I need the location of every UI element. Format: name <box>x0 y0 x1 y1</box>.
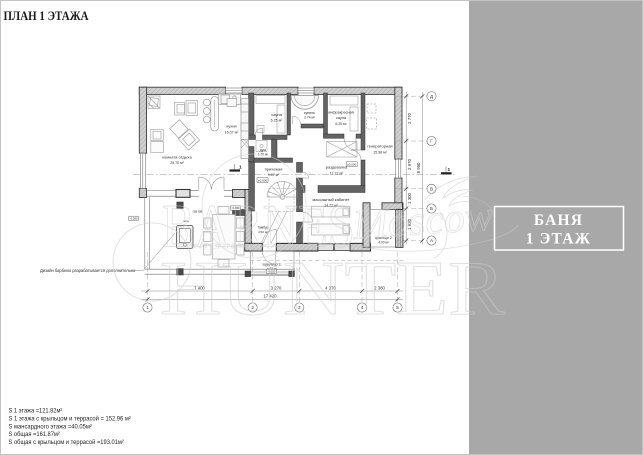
svg-text:11.22 м²: 11.22 м² <box>330 171 344 175</box>
svg-text:сауна: сауна <box>271 112 282 117</box>
svg-text:В: В <box>430 187 433 192</box>
svg-text:комната отдыха: комната отдыха <box>162 154 192 159</box>
svg-text:1 ЭТАЖ: 1 ЭТАЖ <box>526 231 591 248</box>
svg-text:БАНЯ: БАНЯ <box>534 212 583 229</box>
svg-text:±0.000: ±0.000 <box>347 162 356 166</box>
svg-text:1: 1 <box>448 167 451 173</box>
svg-text:2.74 м²: 2.74 м² <box>304 116 316 120</box>
svg-text:-0.080: -0.080 <box>130 217 138 221</box>
svg-text:1: 1 <box>146 305 149 310</box>
svg-text:9.67 м²: 9.67 м² <box>268 173 280 177</box>
svg-text:HUNTER: HUNTER <box>160 245 506 331</box>
svg-text:6.25 м²: 6.25 м² <box>271 119 283 123</box>
svg-text:6.25 м²: 6.25 м² <box>335 122 347 126</box>
svg-text:прихожая: прихожая <box>265 166 283 171</box>
svg-text:душ: душ <box>260 148 267 152</box>
svg-text:S общая с крыльцом и террасой: S общая с крыльцом и террасой =193.01м² <box>9 439 124 446</box>
svg-text:2 770: 2 770 <box>407 113 412 124</box>
svg-text:2 970: 2 970 <box>407 159 412 170</box>
svg-text:±0.000: ±0.000 <box>258 178 267 182</box>
svg-text:S 1 этажа с крыльцом и террасо: S 1 этажа с крыльцом и террасой = 152.96… <box>9 415 131 422</box>
svg-text:16.07 м²: 16.07 м² <box>225 130 239 134</box>
svg-text:сауна: сауна <box>336 116 347 120</box>
svg-text:Дизайн барбекю разрабатывается: Дизайн барбекю разрабатывается дополните… <box>40 268 136 273</box>
svg-text:инфракрасная: инфракрасная <box>328 111 354 115</box>
svg-text:купель: купель <box>304 111 315 115</box>
svg-text:S 1 этажа =121.82м²: S 1 этажа =121.82м² <box>9 408 63 415</box>
svg-text:S общая =161.87м²: S общая =161.87м² <box>9 431 60 438</box>
svg-text:генераторная: генераторная <box>367 144 392 149</box>
svg-text:ПЛАН 1 ЭТАЖА: ПЛАН 1 ЭТАЖА <box>4 8 90 23</box>
svg-text:раздевалка: раздевалка <box>326 165 348 170</box>
svg-text:1: 1 <box>239 165 242 171</box>
svg-text:8 960: 8 960 <box>416 162 421 173</box>
svg-text:Moscow: Moscow <box>350 193 494 249</box>
svg-text:15.98 м²: 15.98 м² <box>373 150 387 154</box>
svg-text:S мансардного этажа =40.05м²: S мансардного этажа =40.05м² <box>9 423 92 430</box>
svg-text:25.70 м²: 25.70 м² <box>170 161 184 165</box>
svg-text:кухня: кухня <box>226 124 236 129</box>
